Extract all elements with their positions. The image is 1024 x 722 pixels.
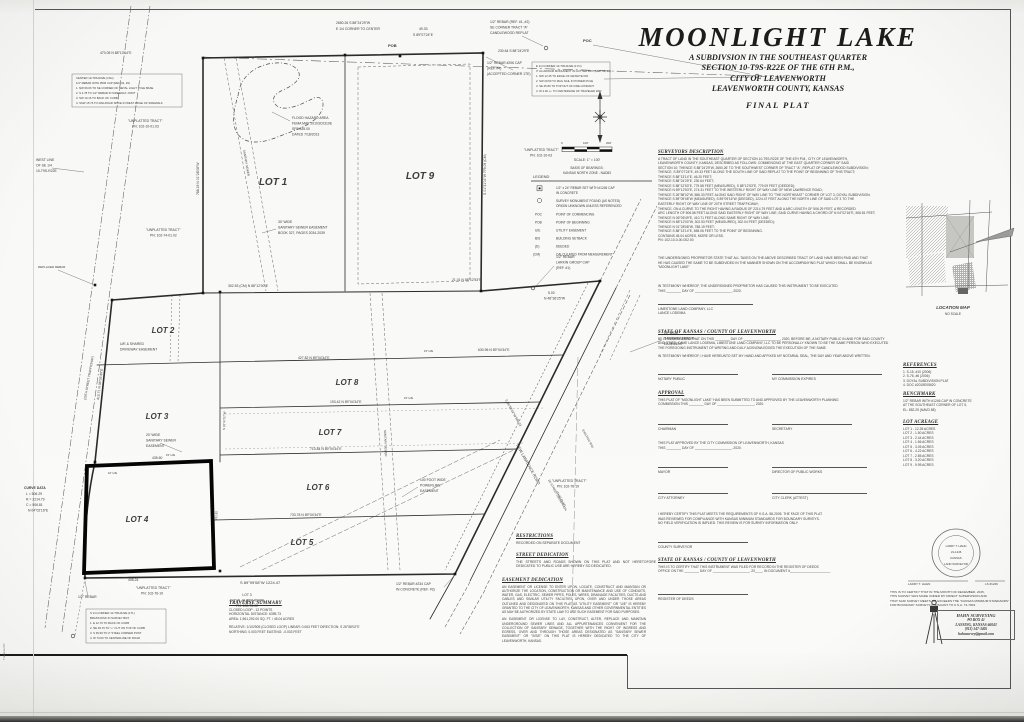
map-label: (D) xyxy=(535,245,539,249)
map-label: 3. SW 10.16 TO BACK OF CURB xyxy=(76,96,118,100)
firm-info-box: HAHN SURVEYING PO BOX 41 LANSING, KANSAS… xyxy=(937,610,1015,640)
map-label: LOT 8 xyxy=(336,378,359,387)
text-line: "MOONLIGHT LAKE" xyxy=(658,265,894,270)
surveyor-seal xyxy=(908,529,1005,581)
text-line: ARC LENGTH OF 506.56 FEET ALONG SAID EAS… xyxy=(658,211,894,216)
map-label: LOT 1 xyxy=(259,177,288,188)
map-label: 1/2" REBAR WITH #506 CAP (REF. #1, #2) xyxy=(76,81,130,85)
map-label: LOT 7 xyxy=(319,428,342,437)
map-label: 4. W 73.60 TO CENTERLINE OF ROAD xyxy=(90,636,140,640)
firm-email: hahnsurvey@gmail.com xyxy=(939,632,1013,637)
map-label: 408.24 xyxy=(128,578,138,582)
map-label: 733.78 N 89°04'34"E xyxy=(290,513,322,517)
subtitle-line: SECTION 10-T9S-R22E OF THE 6TH P.M., xyxy=(632,63,924,73)
map-label: OF SE 1/4 xyxy=(36,164,52,168)
sig-label: MAYOR xyxy=(658,470,728,475)
map-label: LARRY T. HAHN xyxy=(946,544,967,548)
map-label: PN: 102-76-19 xyxy=(141,592,163,596)
map-label: CENTER 10-T9S-R22E (1SG) xyxy=(76,76,114,80)
map-label: 630.96 N 89°04'34"E xyxy=(478,348,510,352)
proprietor-statement: THE UNDERSIGNED PROPRIETOR STATE THAT AL… xyxy=(658,256,894,270)
map-label: EASEMENT xyxy=(146,444,165,448)
map-label: 2. SW 29.50 TO MAG NAIL IN POWER POLE xyxy=(536,79,593,83)
map-label: "UNPLATTED TRACT" xyxy=(146,228,181,232)
map-label: LOT 3 xyxy=(242,593,251,597)
sig-label: NOTARY PUBLIC xyxy=(658,377,738,382)
map-label: 15' U/E xyxy=(404,396,413,400)
map-label: 4. SSW 15.76 TO RAILROAD SPIKE IN WEST E… xyxy=(76,101,163,105)
sig-label: COUNTY SURVEYOR xyxy=(658,545,748,550)
title-block: MOONLIGHT LAKE A SUBDIVSION IN THE SOUTH… xyxy=(632,22,924,110)
map-label: E 1/4 CORNER TO CENTER xyxy=(336,27,381,31)
map-label: LOT 5 xyxy=(291,538,314,547)
map-label: 15' U/E xyxy=(424,349,433,353)
subtitle-line: A SUBDIVSION IN THE SOUTHEAST QUARTER xyxy=(632,53,924,63)
map-label: SE CORNER TRACT "A" xyxy=(490,26,529,30)
map-label: NEW LAWRENCE ROAD xyxy=(515,443,542,485)
map-label: POB xyxy=(388,43,397,48)
map-label: (REF. #4) xyxy=(487,67,501,71)
mayor-signature-row: MAYOR DIRECTOR OF PUBLIC WORKS xyxy=(658,467,894,474)
section-heading: BENCHMARK xyxy=(903,392,1015,397)
map-label: DRIVEWAY EASEMENT xyxy=(120,348,157,352)
map-label: 788.19 N 01°28'08"W xyxy=(196,162,200,195)
map-label: POWERLINE xyxy=(420,484,441,488)
map-label: SANITARY SEWER xyxy=(383,430,388,457)
map-label: (20TH STREET TRAFFICWAY) xyxy=(83,356,95,401)
easement-paragraph: AN EASEMENT OR LICENSE TO LAY, CONSTRUCT… xyxy=(502,617,646,643)
subtitle-line: CITY OF LEAVENWORTH xyxy=(632,74,924,84)
map-label: DATED 7/18/2013 xyxy=(292,133,319,137)
benchmark-section: BENCHMARK 1/2" REBAR WITH #1246 CAP IN C… xyxy=(903,392,1015,412)
map-label: BASIS OF BEARINGS: xyxy=(571,166,604,170)
map-label: S 89°09'08"W 1224.47 xyxy=(240,580,281,585)
sig-label: MY COMMISSION EXPIRES xyxy=(772,377,882,382)
map-label: BOOK 327, PAGES 2034-2039 xyxy=(278,231,325,235)
map-label: CANDLEWOOD REPLAT xyxy=(490,31,529,35)
map-label: 1. NW 66.06 TO SE CORNER OF METAL LIGHT … xyxy=(76,86,154,90)
map-label: S 1/4 CORNER 10-T9S-R22E (1TL) xyxy=(90,611,135,615)
text-line: COMMISSION THIS ________ DAY OF ________… xyxy=(658,402,894,407)
text-line: PN: 102-10-0-00-002.00 xyxy=(658,238,894,243)
section-heading: SURVEYORS DESCRIPTION xyxy=(658,150,894,155)
text-line: THIS ________ DAY OF ___________________… xyxy=(658,289,894,294)
lot-acreage-section: LOT ACREAGE LOT 1 - 12.35 ACRESLOT 2 - 1… xyxy=(903,420,1011,467)
map-label: B/S xyxy=(535,237,540,241)
lot4-highlight-border xyxy=(84,461,214,573)
map-label: POINT OF COMMENCING xyxy=(556,213,595,217)
testimony-statement: IN TESTIMONY WHEREOF, THE UNDERSIGNED PR… xyxy=(658,284,894,293)
map-label: 100 FOOT WIDE xyxy=(420,478,446,482)
map-label: "UNPLATTED TRACT" xyxy=(524,148,559,152)
map-label: U/E & SHARED xyxy=(120,342,144,346)
map-label: EASEMENT xyxy=(420,489,439,493)
map-label: (ACCEPTED CORNER 1TE) xyxy=(487,72,531,76)
notary-section: STATE OF KANSAS / COUNTY OF LEAVENWORTH … xyxy=(658,330,894,359)
north-arrow-icon xyxy=(593,91,607,143)
map-label: SANITARY SEWER xyxy=(146,439,177,443)
map-label: 1/2" REBAR #206 CAP xyxy=(487,61,523,65)
map-label: 1/2" REBAR (REF. #1, #2) xyxy=(490,20,529,24)
map-label: LEGEND xyxy=(533,174,550,179)
map-label: CALCULATED FROM MEASUREMENT xyxy=(556,253,613,257)
map-label: 470.05 N 88°13'14"E xyxy=(100,51,132,55)
map-label: KANSAS xyxy=(950,556,961,560)
surveyor-cert-section: THIS IS TO CERTIFY THAT IN THE MONTH OF … xyxy=(890,590,1016,607)
text-line: NORTHING: 0.003 FEET EASTING: -0.033 FEE… xyxy=(229,630,439,635)
proprietor-signature: LIMESTONE LAND COMPANY, LLC LANCE LODEMI… xyxy=(658,304,753,316)
map-label: 1/2" REBAR #234 CAP xyxy=(396,582,432,586)
attorney-signature-row: CITY ATTORNEY CITY CLERK (ATTEST) xyxy=(658,493,894,500)
map-label: LARRY T. HAHN xyxy=(908,582,930,586)
map-label: 3" ALUMINUM MONUMENT IN GUTTER BOX (REF.… xyxy=(536,69,611,73)
notary-signature-row: NOTARY PUBLIC MY COMMISSION EXPIRES xyxy=(658,374,894,381)
approval-section: APPROVAL THIS PLAT OF "MOONLIGHT LAKE" H… xyxy=(658,391,894,407)
section-heading: STREET DEDICATION xyxy=(516,553,656,558)
map-label: 2. S 4.78 TO 1/2" REBAR IN SIDEWALK JOIN… xyxy=(76,91,136,95)
street-dedication-section: STREET DEDICATION THE STREETS AND ROADS … xyxy=(516,553,656,569)
section-heading: STATE OF KANSAS / COUNTY OF LEAVENWORTH xyxy=(658,558,894,563)
map-label: 3. SE 25.80 TO TOP NUT OF FIRE HYDRANT xyxy=(536,84,594,88)
map-label: SFE 835.00 xyxy=(292,127,310,131)
map-label: POINT OF BEGINNING xyxy=(556,221,590,225)
map-label: 200' xyxy=(606,141,612,145)
map-label: 4. W 4.92 +/- TO CENTERLINE OF TRAVELED … xyxy=(536,89,602,93)
map-label: PN: 102-76-19 xyxy=(557,485,579,489)
section-heading: REFERENCES xyxy=(903,363,1011,368)
map-label: 1/2" x 24" REBAR SET WITH #1246 CAP xyxy=(556,186,615,190)
map-label: N 04°02'16"E xyxy=(28,509,49,513)
text-line: THE FOREGOING INSTRUMENT OF WRITING AND … xyxy=(658,346,894,351)
map-label: 5.00 xyxy=(548,291,555,295)
map-label: (REF. #1) xyxy=(556,266,570,270)
map-label: POB xyxy=(535,221,542,225)
map-label: SANITARY SEWER xyxy=(242,149,251,177)
surveyors-description-section: SURVEYORS DESCRIPTION A TRACT OF LAND IN… xyxy=(658,150,894,243)
section-heading: EASEMENT DEDICATION xyxy=(502,578,646,583)
map-label: 193.42 N 89°04'34"E xyxy=(330,400,362,404)
map-label: "UNPLATTED TRACT" xyxy=(552,479,587,483)
map-label: 427.82 N 89°04'34"E xyxy=(298,356,330,360)
map-label: 1. NW 12.45 TO EDGE OF GRANITE INN xyxy=(536,74,588,78)
map-label: KANSAS NORTH ZONE - NAD83 xyxy=(563,171,611,175)
map-label: LOT 2 xyxy=(152,326,175,335)
section-heading: STATE OF KANSAS / COUNTY OF LEAVENWORTH xyxy=(658,330,894,335)
section-heading: LOT ACREAGE xyxy=(903,420,1011,425)
map-label: C = 506.81 xyxy=(26,503,43,507)
map-label: IN CONCRETE (REF. #3) xyxy=(396,588,435,592)
final-plat-label: FINAL PLAT xyxy=(632,100,924,110)
map-label: SURVEY MONUMENT FOUND (AS NOTED) xyxy=(556,199,620,203)
map-label: FLOOD HAZARD AREA xyxy=(292,116,329,120)
map-label: WEST LINE xyxy=(36,158,55,162)
map-label: POC xyxy=(583,38,592,43)
map-label: PN: 102-10-03 xyxy=(530,154,552,158)
map-label: NO SCALE xyxy=(945,312,961,316)
county-surveyor-signature: COUNTY SURVEYOR xyxy=(658,542,748,549)
map-label: S 89°07'24"E xyxy=(413,33,434,37)
map-label: EXISTING R/W xyxy=(581,429,595,449)
map-label: 100' xyxy=(583,141,589,145)
text-line: EL: 852.25 (NAVD 88) xyxy=(903,408,1015,413)
county-cert-section: I HEREBY CERTIFY THIS PLAT MEETS THE REQ… xyxy=(658,512,894,526)
map-label: U/E xyxy=(535,229,540,233)
text-line: HE HAS CAUSED THE SAME TO BE SUBDIVIDED … xyxy=(658,261,894,266)
map-label: 0 xyxy=(561,141,563,145)
map-label: LARKIN GROUP CAP xyxy=(556,261,590,265)
map-label: 2650.26 S 88°24'29"W xyxy=(336,21,371,25)
scale-bar xyxy=(562,147,612,152)
map-label: REPLACED REBAR xyxy=(38,265,66,269)
filing-section: STATE OF KANSAS / COUNTY OF LEAVENWORTH … xyxy=(658,558,894,574)
page-title: MOONLIGHT LAKE xyxy=(632,22,924,53)
map-label: "UNPLATTED TRACT" xyxy=(128,119,163,123)
monument-symbols xyxy=(71,46,759,638)
map-label: 10' U/E xyxy=(108,471,117,475)
map-label: 3. S 39.69 TO 2" STEEL CORNER POST xyxy=(90,631,142,635)
text-line: THE UNDERSIGNED PROPRIETOR STATE THAT AL… xyxy=(658,256,894,261)
restrictions-text: RECORDED ON SEPARATE DOCUMENT xyxy=(516,541,648,546)
map-label: 2. NE 39.76 TO "+" CUT ON TOP OF CURB xyxy=(90,626,145,630)
city-approval-statement: THIS PLAT APPROVED BY THE CITY COMMISSIO… xyxy=(658,441,894,450)
map-label: N 48°36'25"W xyxy=(544,297,566,301)
map-label: 211.82 xyxy=(214,511,218,520)
map-label: CURVE DATA xyxy=(24,486,46,490)
map-label: 1/2" REBAR xyxy=(78,595,97,599)
street-dedication-text: THE STREETS AND ROADS SHOWN ON THIS PLAT… xyxy=(516,560,656,569)
map-label: POC xyxy=(535,213,543,217)
text-line: AND STATE, CAME LANCE LODEMIA, LIMESTONE… xyxy=(658,341,894,346)
map-label: 710.84 N 89°04'34"E xyxy=(310,447,342,451)
map-label: LOT 9 xyxy=(406,171,435,182)
easement-dedication-section: EASEMENT DEDICATION AN EASEMENT OR LICEN… xyxy=(502,578,646,643)
map-label: 1. E 12.76 TO BACK OF CURB xyxy=(90,621,129,625)
map-label: BUILDING SETBACK xyxy=(556,237,588,241)
text-line: FOR BOUNDARY SURVEYS PURSUANT TO K.S.A. … xyxy=(890,603,1016,607)
text-line: OFFICE ON THE ________ DAY OF __________… xyxy=(658,569,894,574)
sig-label: SECRETARY xyxy=(772,427,852,432)
map-label: PN: 102-10-01.03 xyxy=(132,125,159,129)
map-label: S 01°47'07"W xyxy=(222,411,227,430)
map-label: UTILITY EASEMENT xyxy=(556,229,586,233)
sig-label: DIRECTOR OF PUBLIC WORKS xyxy=(772,470,867,475)
map-label: LOT 4 xyxy=(126,515,149,524)
margin-note: Traverse PC xyxy=(2,600,6,660)
easement-paragraph: AN EASEMENT OR LICENSE TO ENTER UPON, LO… xyxy=(502,585,646,615)
map-label: LS #1246 xyxy=(985,582,998,586)
sig-label: CITY ATTORNEY xyxy=(658,496,728,501)
section-heading: RESTRICTIONS xyxy=(516,534,648,539)
sig-label: CITY CLERK (ATTEST) xyxy=(772,496,867,501)
map-label: LAND SURVEYOR xyxy=(944,562,968,566)
signer-name: LANCE LODEMIA xyxy=(658,311,753,316)
text-line: NO FIELD VERIFICATION IS IMPLIED. THIS R… xyxy=(658,521,894,526)
map-label: DEEDED xyxy=(556,245,570,249)
map-label: 49.33 xyxy=(419,27,428,31)
map-label: LOT 3 xyxy=(146,412,169,421)
text-line: IN TESTIMONY WHEREOF, I HAVE HEREUNTO SE… xyxy=(658,354,894,359)
map-label: PN: 102-74-01.02 xyxy=(150,234,177,238)
map-label: 302.53 (CM) N 88°12'00"E xyxy=(228,284,269,288)
subtitle-line: LEAVENWORTH COUNTY, KANSAS xyxy=(632,84,924,94)
map-label: BRASS DISK IN SURVEY BOX xyxy=(90,616,129,620)
text-line: 4. DOC #2015E05620 xyxy=(903,383,1011,388)
map-label: LOT 6 xyxy=(307,483,330,492)
map-label: "UNPLATTED TRACT" xyxy=(136,586,171,590)
location-map xyxy=(906,200,1014,296)
register-of-deeds-signature: REGISTER OF DEEDS xyxy=(658,594,748,601)
map-label: L = 506.29 xyxy=(26,492,42,496)
map-label: 21.01 N 88°12'53"E xyxy=(452,278,482,282)
map-label: 10-T9S-R22E xyxy=(36,169,57,173)
map-label: E 1/4 CORNER 10-T9S-R22E (1YO) xyxy=(536,64,582,68)
map-label: ORIGIN UNKNOWN UNLESS REFERENCED xyxy=(556,204,622,208)
sig-label: CHAIRMAN xyxy=(658,427,728,432)
map-label: S 01°31'01"W 779.09 (CM) xyxy=(483,154,487,195)
map-label: 20' WIDE xyxy=(146,433,161,437)
map-label: 30' WIDE xyxy=(278,220,293,224)
map-label: (CM) xyxy=(533,253,540,257)
sig-label: REGISTER OF DEEDS xyxy=(658,597,748,602)
map-label: SANITARY SEWER EASEMENT xyxy=(278,226,328,230)
map-label: LOCATION MAP xyxy=(936,305,970,310)
restrictions-section: RESTRICTIONS RECORDED ON SEPARATE DOCUME… xyxy=(516,534,648,545)
traverse-summary-section: TRAVERSE SUMMARY CLOSED LOOP - 12 POINTS… xyxy=(229,601,439,634)
map-label: SCALE: 1" = 100' xyxy=(574,158,601,162)
map-label: R = 2214.79 xyxy=(26,498,45,502)
map-label: IN CONCRETE xyxy=(556,191,578,195)
map-label: 15' U/E xyxy=(166,453,175,457)
map-label: FEMA MAP 20103C0310E xyxy=(292,122,333,126)
easement-lines xyxy=(75,58,640,635)
section-heading: APPROVAL xyxy=(658,391,894,396)
section-heading: TRAVERSE SUMMARY xyxy=(229,601,439,606)
map-label: 230.64 S 88°24'29"E xyxy=(498,49,530,53)
text-line: THIS ________ DAY OF ___________________… xyxy=(658,446,894,451)
map-label: LS-1246 xyxy=(951,550,962,554)
map-label: 435.60 xyxy=(152,456,162,460)
text-line: LOT 9 - 9.95 ACRES xyxy=(903,463,1011,468)
approval-signature-row: CHAIRMAN SECRETARY xyxy=(658,424,894,431)
references-section: REFERENCES 1. S-15, #10 (2006)2. S-76, #… xyxy=(903,363,1011,388)
